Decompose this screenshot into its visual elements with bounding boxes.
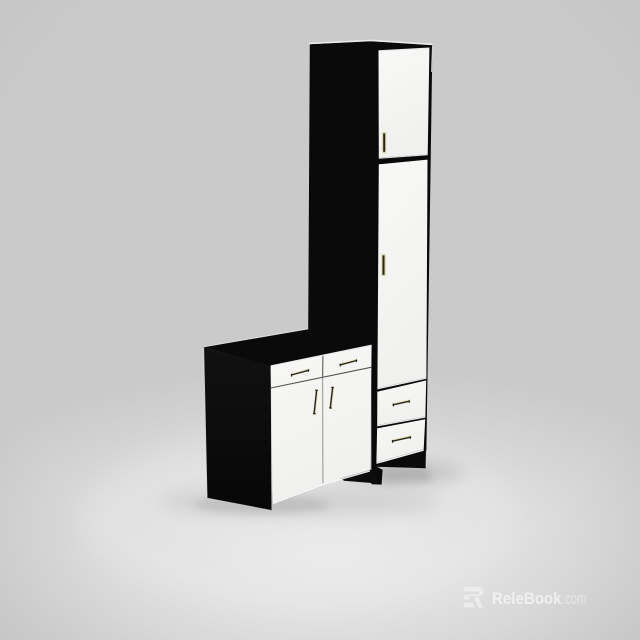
svg-text:.com: .com	[562, 589, 587, 608]
svg-text:ReleBook: ReleBook	[492, 589, 562, 608]
